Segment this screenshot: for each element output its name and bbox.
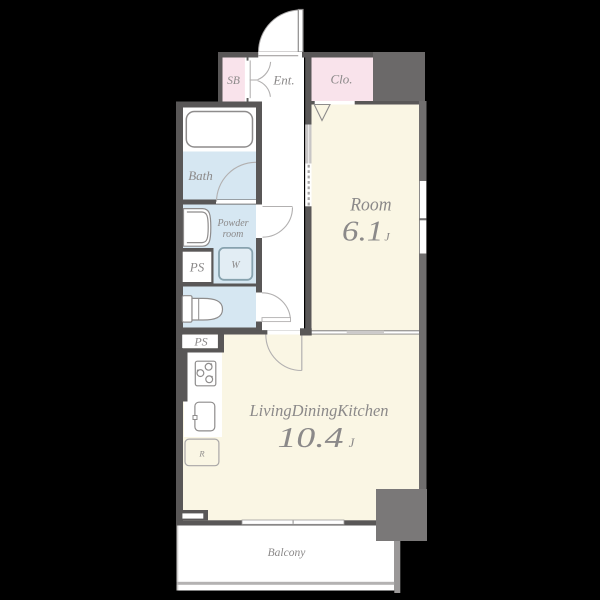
svg-text:SB: SB — [227, 75, 240, 87]
svg-text:R: R — [198, 449, 205, 459]
svg-text:Balcony: Balcony — [268, 547, 307, 559]
svg-text:LivingDiningKitchen: LivingDiningKitchen — [249, 401, 389, 420]
svg-text:Powder: Powder — [216, 218, 248, 229]
svg-text:Room: Room — [349, 196, 391, 216]
svg-text:Bath: Bath — [188, 168, 213, 183]
svg-text:6.1: 6.1 — [342, 216, 383, 247]
svg-text:room: room — [223, 229, 244, 240]
svg-text:Ent.: Ent. — [272, 73, 294, 88]
svg-text:J: J — [384, 229, 390, 243]
svg-text:PS: PS — [193, 334, 207, 348]
svg-text:PS: PS — [189, 259, 205, 274]
svg-text:Clo.: Clo. — [330, 72, 352, 87]
svg-text:10.4: 10.4 — [278, 423, 344, 454]
